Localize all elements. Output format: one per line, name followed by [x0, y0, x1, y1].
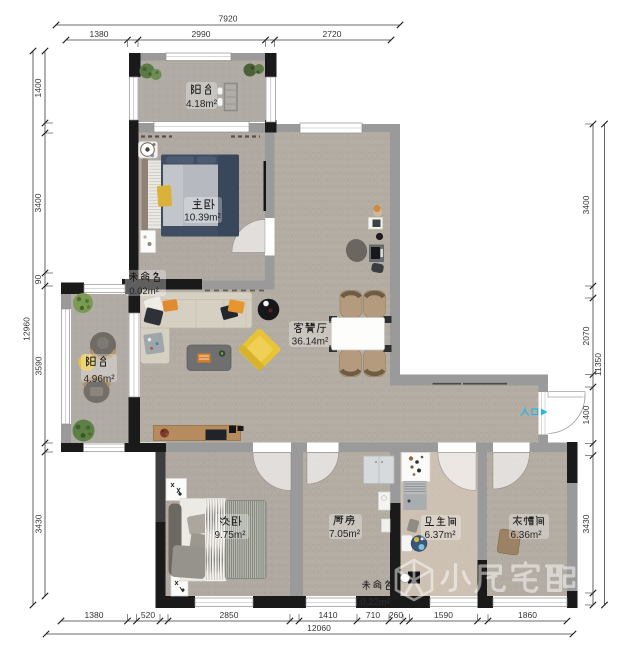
svg-text:4.96m²: 4.96m² — [83, 374, 115, 385]
svg-text:2720: 2720 — [323, 29, 342, 39]
svg-text:7.05m²: 7.05m² — [329, 529, 361, 540]
svg-text:4.18m²: 4.18m² — [186, 99, 218, 110]
svg-text:90: 90 — [33, 275, 43, 285]
svg-text:0.02m²: 0.02m² — [129, 286, 159, 297]
svg-text:3400: 3400 — [581, 195, 591, 214]
svg-text:3590: 3590 — [34, 356, 44, 375]
svg-text:6.36m²: 6.36m² — [510, 530, 542, 541]
svg-text:2850: 2850 — [220, 610, 239, 620]
svg-text:3430: 3430 — [581, 514, 591, 533]
svg-text:1380: 1380 — [85, 610, 104, 620]
svg-text:1380: 1380 — [90, 29, 109, 39]
svg-text:520: 520 — [141, 610, 155, 620]
svg-text:1410: 1410 — [319, 610, 338, 620]
svg-text:710: 710 — [366, 610, 380, 620]
svg-text:7920: 7920 — [219, 14, 238, 24]
svg-text:260: 260 — [389, 610, 403, 620]
svg-text:12060: 12060 — [307, 623, 331, 633]
svg-text:1590: 1590 — [434, 610, 453, 620]
svg-text:1860: 1860 — [518, 610, 537, 620]
svg-text:12960: 12960 — [22, 317, 32, 341]
svg-text:3430: 3430 — [34, 514, 44, 533]
svg-text:3400: 3400 — [33, 193, 43, 212]
svg-text:6.37m²: 6.37m² — [424, 530, 456, 541]
svg-text:2990: 2990 — [192, 29, 211, 39]
svg-text:11350: 11350 — [593, 353, 603, 376]
svg-text:1400: 1400 — [581, 405, 591, 424]
svg-text:10.39m²: 10.39m² — [184, 213, 221, 224]
svg-text:9.75m²: 9.75m² — [214, 530, 246, 541]
svg-text:2070: 2070 — [581, 326, 591, 345]
svg-text:1400: 1400 — [33, 78, 43, 97]
svg-text:0.22m²: 0.22m² — [360, 597, 390, 608]
svg-text:36.14m²: 36.14m² — [292, 337, 329, 348]
